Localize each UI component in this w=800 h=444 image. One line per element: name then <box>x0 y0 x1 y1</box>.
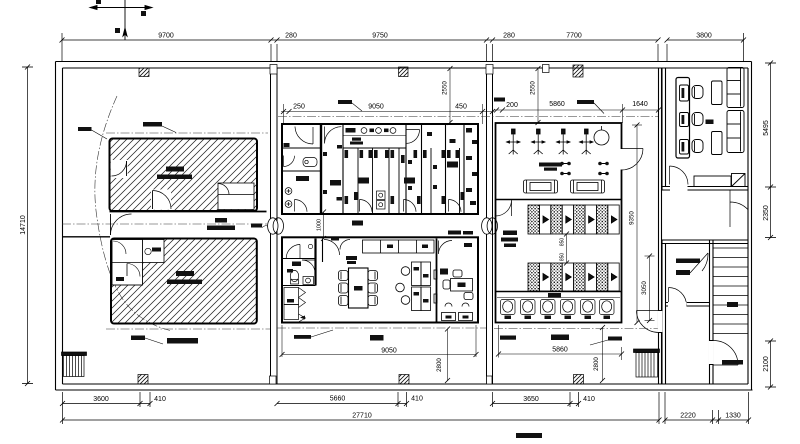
svg-text:14710: 14710 <box>20 215 27 235</box>
svg-text:280: 280 <box>285 33 297 40</box>
svg-text:2550: 2550 <box>442 81 449 95</box>
svg-text:410: 410 <box>583 396 595 403</box>
svg-text:3800: 3800 <box>696 33 712 40</box>
svg-text:410: 410 <box>154 396 166 403</box>
svg-text:3050: 3050 <box>641 281 648 295</box>
svg-text:2350: 2350 <box>763 205 770 221</box>
svg-text:7700: 7700 <box>566 33 582 40</box>
svg-text:850: 850 <box>560 253 566 262</box>
svg-text:2800: 2800 <box>436 358 443 372</box>
svg-text:1330: 1330 <box>725 413 741 420</box>
svg-text:2220: 2220 <box>680 413 696 420</box>
svg-text:1000: 1000 <box>317 219 323 231</box>
svg-text:200: 200 <box>506 102 518 109</box>
svg-text:9350: 9350 <box>629 211 636 225</box>
svg-text:9700: 9700 <box>158 33 174 40</box>
svg-text:5860: 5860 <box>552 347 568 354</box>
svg-text:5860: 5860 <box>549 101 565 108</box>
svg-text:9050: 9050 <box>368 104 384 111</box>
svg-text:1640: 1640 <box>632 101 648 108</box>
svg-text:450: 450 <box>455 104 467 111</box>
svg-text:2550: 2550 <box>530 81 537 95</box>
svg-text:410: 410 <box>411 396 423 403</box>
svg-text:2800: 2800 <box>593 357 600 371</box>
svg-text:250: 250 <box>293 104 305 111</box>
svg-text:3600: 3600 <box>93 396 109 403</box>
svg-text:3650: 3650 <box>523 396 539 403</box>
svg-text:9050: 9050 <box>381 348 397 355</box>
svg-text:9750: 9750 <box>372 33 388 40</box>
svg-text:2100: 2100 <box>763 356 770 372</box>
svg-text:27710: 27710 <box>352 413 372 420</box>
svg-text:280: 280 <box>503 33 515 40</box>
svg-text:850: 850 <box>560 238 566 247</box>
svg-text:5495: 5495 <box>763 120 770 136</box>
svg-text:5660: 5660 <box>330 396 346 403</box>
